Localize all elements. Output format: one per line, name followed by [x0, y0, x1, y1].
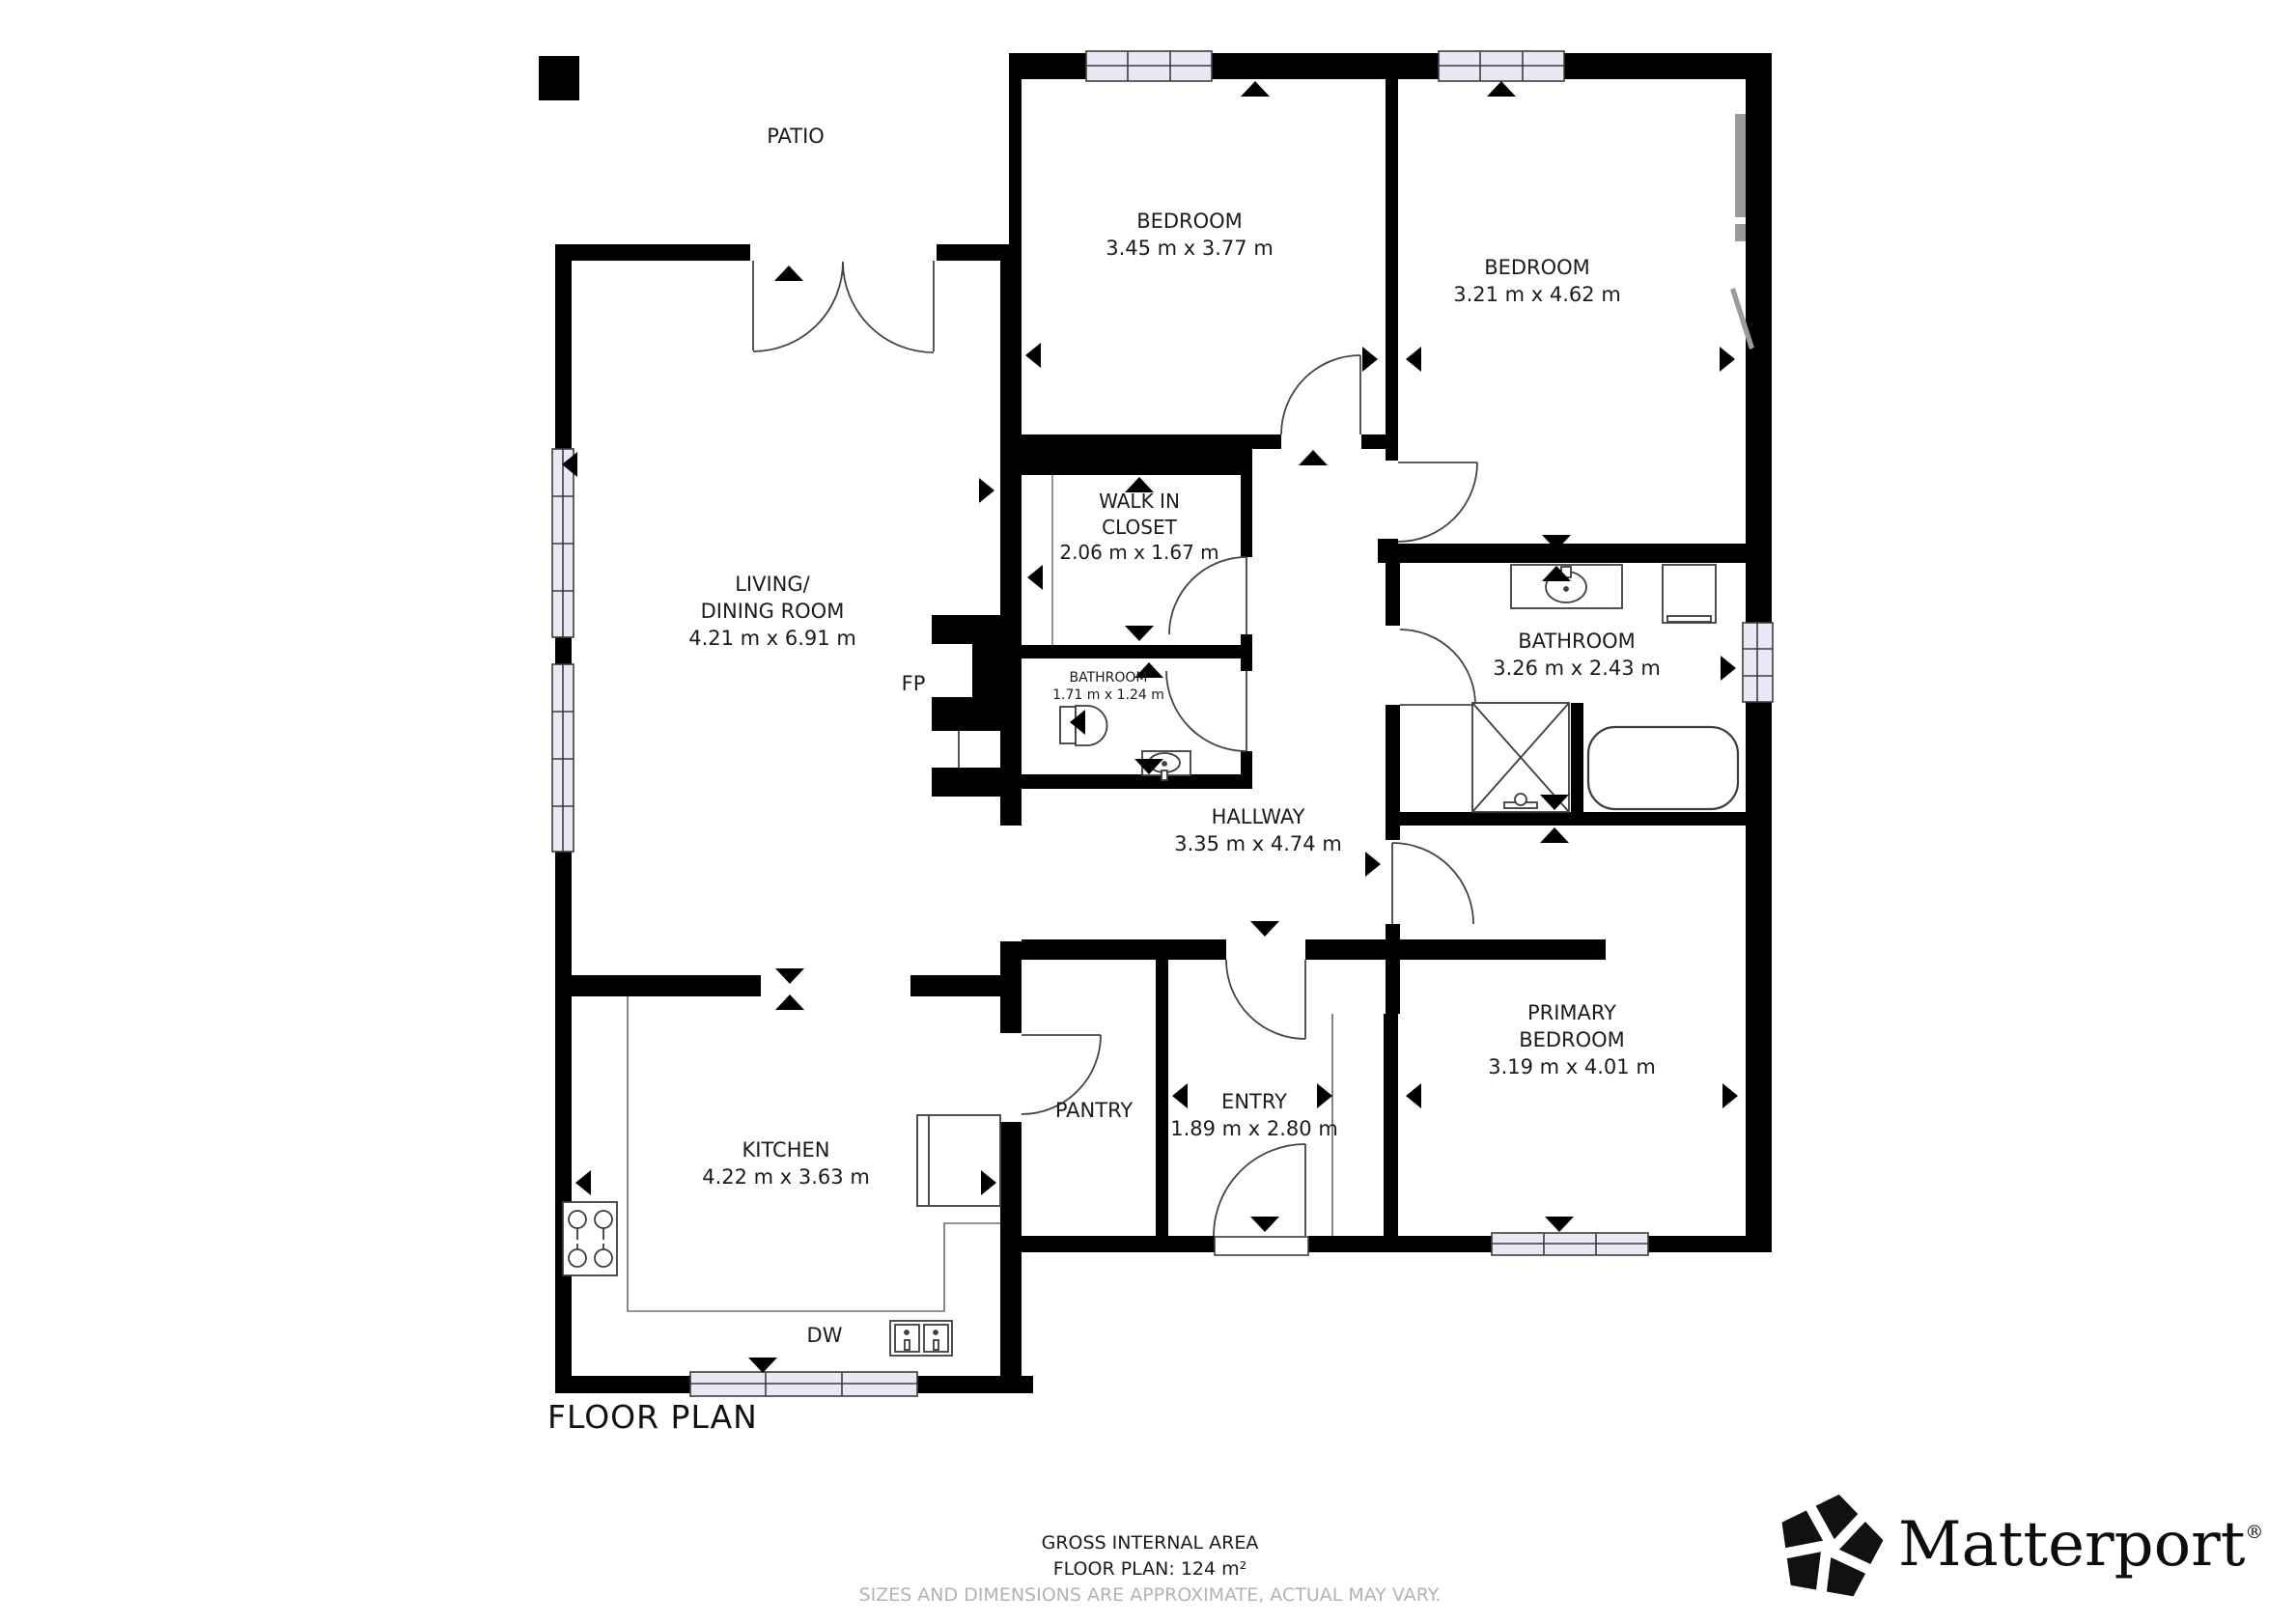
- stove-icon: [563, 1202, 617, 1275]
- room-label-kitchen: KITCHEN 4.22 m x 3.63 m: [702, 1137, 870, 1191]
- room-label-entry: ENTRY 1.89 m x 2.80 m: [1170, 1089, 1338, 1143]
- room-label-bedroom1: BEDROOM 3.45 m x 3.77 m: [1106, 209, 1274, 263]
- disclaimer-text: SIZES AND DIMENSIONS ARE APPROXIMATE, AC…: [859, 1582, 1442, 1609]
- door-bedroom1: [1281, 355, 1360, 434]
- window-kitchen: [690, 1372, 917, 1396]
- window-living-upper: [552, 449, 574, 637]
- front-door-threshold: [1215, 1237, 1308, 1255]
- room-label-walk-in-closet: WALK IN CLOSET 2.06 m x 1.67 m: [1059, 489, 1218, 566]
- window-living-lower: [552, 664, 574, 852]
- direction-arrow: [1721, 656, 1736, 681]
- direction-arrow: [1722, 1083, 1738, 1108]
- matterport-logo-icon: [1775, 1495, 1884, 1603]
- door-bathroom-small: [1166, 671, 1246, 751]
- kitchen-sink-icon: [890, 1321, 952, 1356]
- direction-arrow: [979, 478, 994, 503]
- footer-note: GROSS INTERNAL AREA FLOOR PLAN: 124 m² S…: [859, 1530, 1442, 1609]
- doors: [753, 261, 1477, 1236]
- room-label-bathroom: BATHROOM 3.26 m x 2.43 m: [1493, 629, 1661, 683]
- gross-internal-area-label: GROSS INTERNAL AREA: [859, 1530, 1442, 1556]
- window-bedroom1: [1086, 51, 1212, 81]
- door-closet: [1169, 557, 1246, 634]
- direction-arrow: [1720, 347, 1735, 372]
- direction-arrow: [775, 994, 804, 1010]
- window-bedroom2: [1439, 51, 1564, 81]
- window-primary: [1492, 1233, 1648, 1255]
- patio-wall-marker: [539, 56, 579, 100]
- direction-arrow: [1025, 343, 1041, 368]
- direction-arrow: [774, 266, 803, 281]
- floor-plan-area-value: FLOOR PLAN: 124 m²: [859, 1556, 1442, 1582]
- room-label-primary-bedroom: PRIMARY BEDROOM 3.19 m x 4.01 m: [1488, 1000, 1656, 1081]
- bathtub-icon: [1588, 727, 1738, 809]
- direction-arrow: [1027, 565, 1043, 590]
- direction-arrow: [575, 1170, 591, 1195]
- room-label-pantry: PANTRY: [1055, 1098, 1133, 1125]
- vanity-sink-icon: [1511, 565, 1622, 608]
- matterport-wordmark: Matterport®: [1898, 1509, 2263, 1581]
- direction-arrow: [1365, 852, 1381, 877]
- fireplace-icon: [932, 615, 1004, 797]
- fireplace-label: FP: [902, 671, 926, 698]
- door-entry: [1226, 960, 1305, 1039]
- direction-arrow: [1406, 1083, 1421, 1108]
- direction-arrow: [1241, 81, 1270, 97]
- direction-arrow: [1545, 1217, 1574, 1232]
- door-primary: [1392, 843, 1473, 924]
- fridge-icon: [917, 1115, 1000, 1206]
- direction-arrow: [775, 968, 804, 984]
- direction-arrow: [1250, 921, 1279, 937]
- direction-arrow: [1125, 626, 1154, 641]
- direction-arrow: [1299, 450, 1328, 465]
- direction-arrow: [1487, 81, 1516, 97]
- room-label-patio: PATIO: [767, 124, 825, 151]
- door-bathroom: [1400, 630, 1475, 705]
- direction-arrow: [1362, 347, 1378, 372]
- direction-arrow: [1540, 827, 1569, 843]
- direction-arrow: [748, 1358, 777, 1373]
- bathroom-cabinet-icon: [1663, 565, 1716, 623]
- page-title: FLOOR PLAN: [547, 1398, 758, 1436]
- window-bathroom: [1743, 623, 1773, 702]
- floor-plan-page: PATIO BEDROOM 3.45 m x 3.77 m BEDROOM 3.…: [0, 0, 2296, 1624]
- direction-arrow: [1250, 1217, 1279, 1232]
- room-label-bathroom-small: BATHROOM 1.71 m x 1.24 m: [1052, 669, 1164, 704]
- room-label-bedroom2: BEDROOM 3.21 m x 4.62 m: [1453, 255, 1621, 309]
- room-label-hallway: HALLWAY 3.35 m x 4.74 m: [1174, 804, 1342, 858]
- registered-mark: ®: [2245, 1522, 2263, 1543]
- door-patio: [753, 261, 934, 352]
- door-bedroom2: [1398, 462, 1477, 542]
- direction-arrow: [1406, 347, 1421, 372]
- room-label-living-dining: LIVING/ DINING ROOM 4.21 m x 6.91 m: [688, 572, 856, 653]
- dishwasher-label: DW: [807, 1323, 843, 1350]
